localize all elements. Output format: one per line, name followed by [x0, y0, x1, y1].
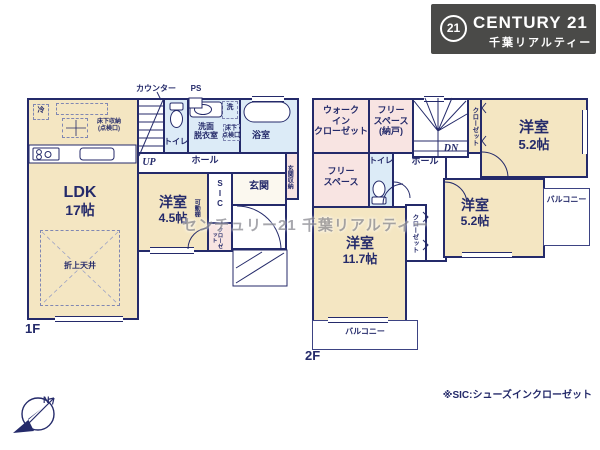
- ldk-name-label: LDK: [50, 184, 110, 203]
- fridge-label: 冷: [33, 107, 49, 115]
- bedroom-2f-3-name-label: 洋室: [328, 235, 392, 252]
- logo-subtitle-text: 千葉リアルティー: [489, 34, 592, 50]
- window: [252, 96, 284, 102]
- hall-2f-label: ホール: [404, 156, 446, 167]
- washer-label: 洗: [224, 104, 236, 112]
- underfloor-hatch-label: 床下 点検口: [222, 126, 240, 140]
- bedroom-2f-3-size-label: 11.7帖: [328, 252, 392, 266]
- bedroom-2f-1-name-label: 洋室: [504, 119, 564, 137]
- compass-north-label: N: [43, 395, 50, 406]
- century21-logo: 21 CENTURY 21 千葉リアルティー: [431, 4, 596, 54]
- floor2-label: 2F: [305, 348, 320, 363]
- free-space-storage-label: フリー スペース (納戸): [369, 105, 413, 137]
- window: [55, 316, 123, 322]
- bedroom-2f-1-size-label: 5.2帖: [504, 137, 564, 152]
- watermark: センチュリー21 千葉リアルティー: [182, 214, 429, 235]
- window: [424, 96, 444, 102]
- sic-footnote: ※SIC:シューズインクローゼット: [420, 386, 592, 401]
- entrance-label: 玄関: [239, 181, 279, 193]
- ldk-size-label: 17帖: [50, 202, 110, 219]
- sic-label: S I C: [209, 179, 231, 209]
- counter-label: カウンター: [134, 84, 178, 93]
- toilet-2f-label: トイレ: [366, 156, 396, 165]
- balcony-right-label: バルコニー: [543, 195, 590, 204]
- room-stairs-1f: [137, 98, 165, 159]
- ps-label: PS: [184, 84, 208, 93]
- compass-needle-icon: [13, 409, 41, 433]
- closet-2f-top-label: クローゼット: [470, 101, 477, 151]
- window: [582, 110, 588, 154]
- logo-brand-text: CENTURY 21: [473, 13, 588, 33]
- bedroom-2f-2-name-label: 洋室: [444, 197, 506, 214]
- underfloor-storage-label: 床下収納 (点検口): [89, 119, 129, 133]
- logo-circle-21-icon: 21: [440, 15, 467, 42]
- washroom-label: 洗面 脱衣室: [191, 122, 221, 141]
- window: [462, 252, 512, 258]
- hall-1f-label: ホール: [183, 155, 227, 166]
- window: [150, 247, 194, 254]
- entrance-storage-label: 玄関収納: [286, 156, 292, 198]
- bedroom-2f-2-size-label: 5.2帖: [444, 214, 506, 228]
- toilet-1f-label: トイレ: [163, 137, 189, 146]
- free-space-label: フリー スペース: [314, 166, 368, 187]
- stairs-dn-label: DN: [438, 143, 464, 155]
- cabinet-outline: [56, 103, 108, 115]
- underfloor-storage-outline: [62, 118, 88, 138]
- floorplan-canvas: カウンター PS 冷 床下収納 (点検口) LDK 17帖 折上天井 UP トイ…: [0, 0, 600, 450]
- balcony-bottom-label: バルコニー: [330, 327, 400, 336]
- window: [328, 317, 388, 323]
- wic-label: ウォーク イン クローゼット: [313, 105, 369, 137]
- room-bath: [239, 98, 299, 154]
- stairs-up-label: UP: [136, 157, 162, 169]
- coffered-ceiling-label: 折上天井: [55, 261, 105, 270]
- bath-label: 浴室: [241, 130, 281, 141]
- floor1-label: 1F: [25, 321, 40, 336]
